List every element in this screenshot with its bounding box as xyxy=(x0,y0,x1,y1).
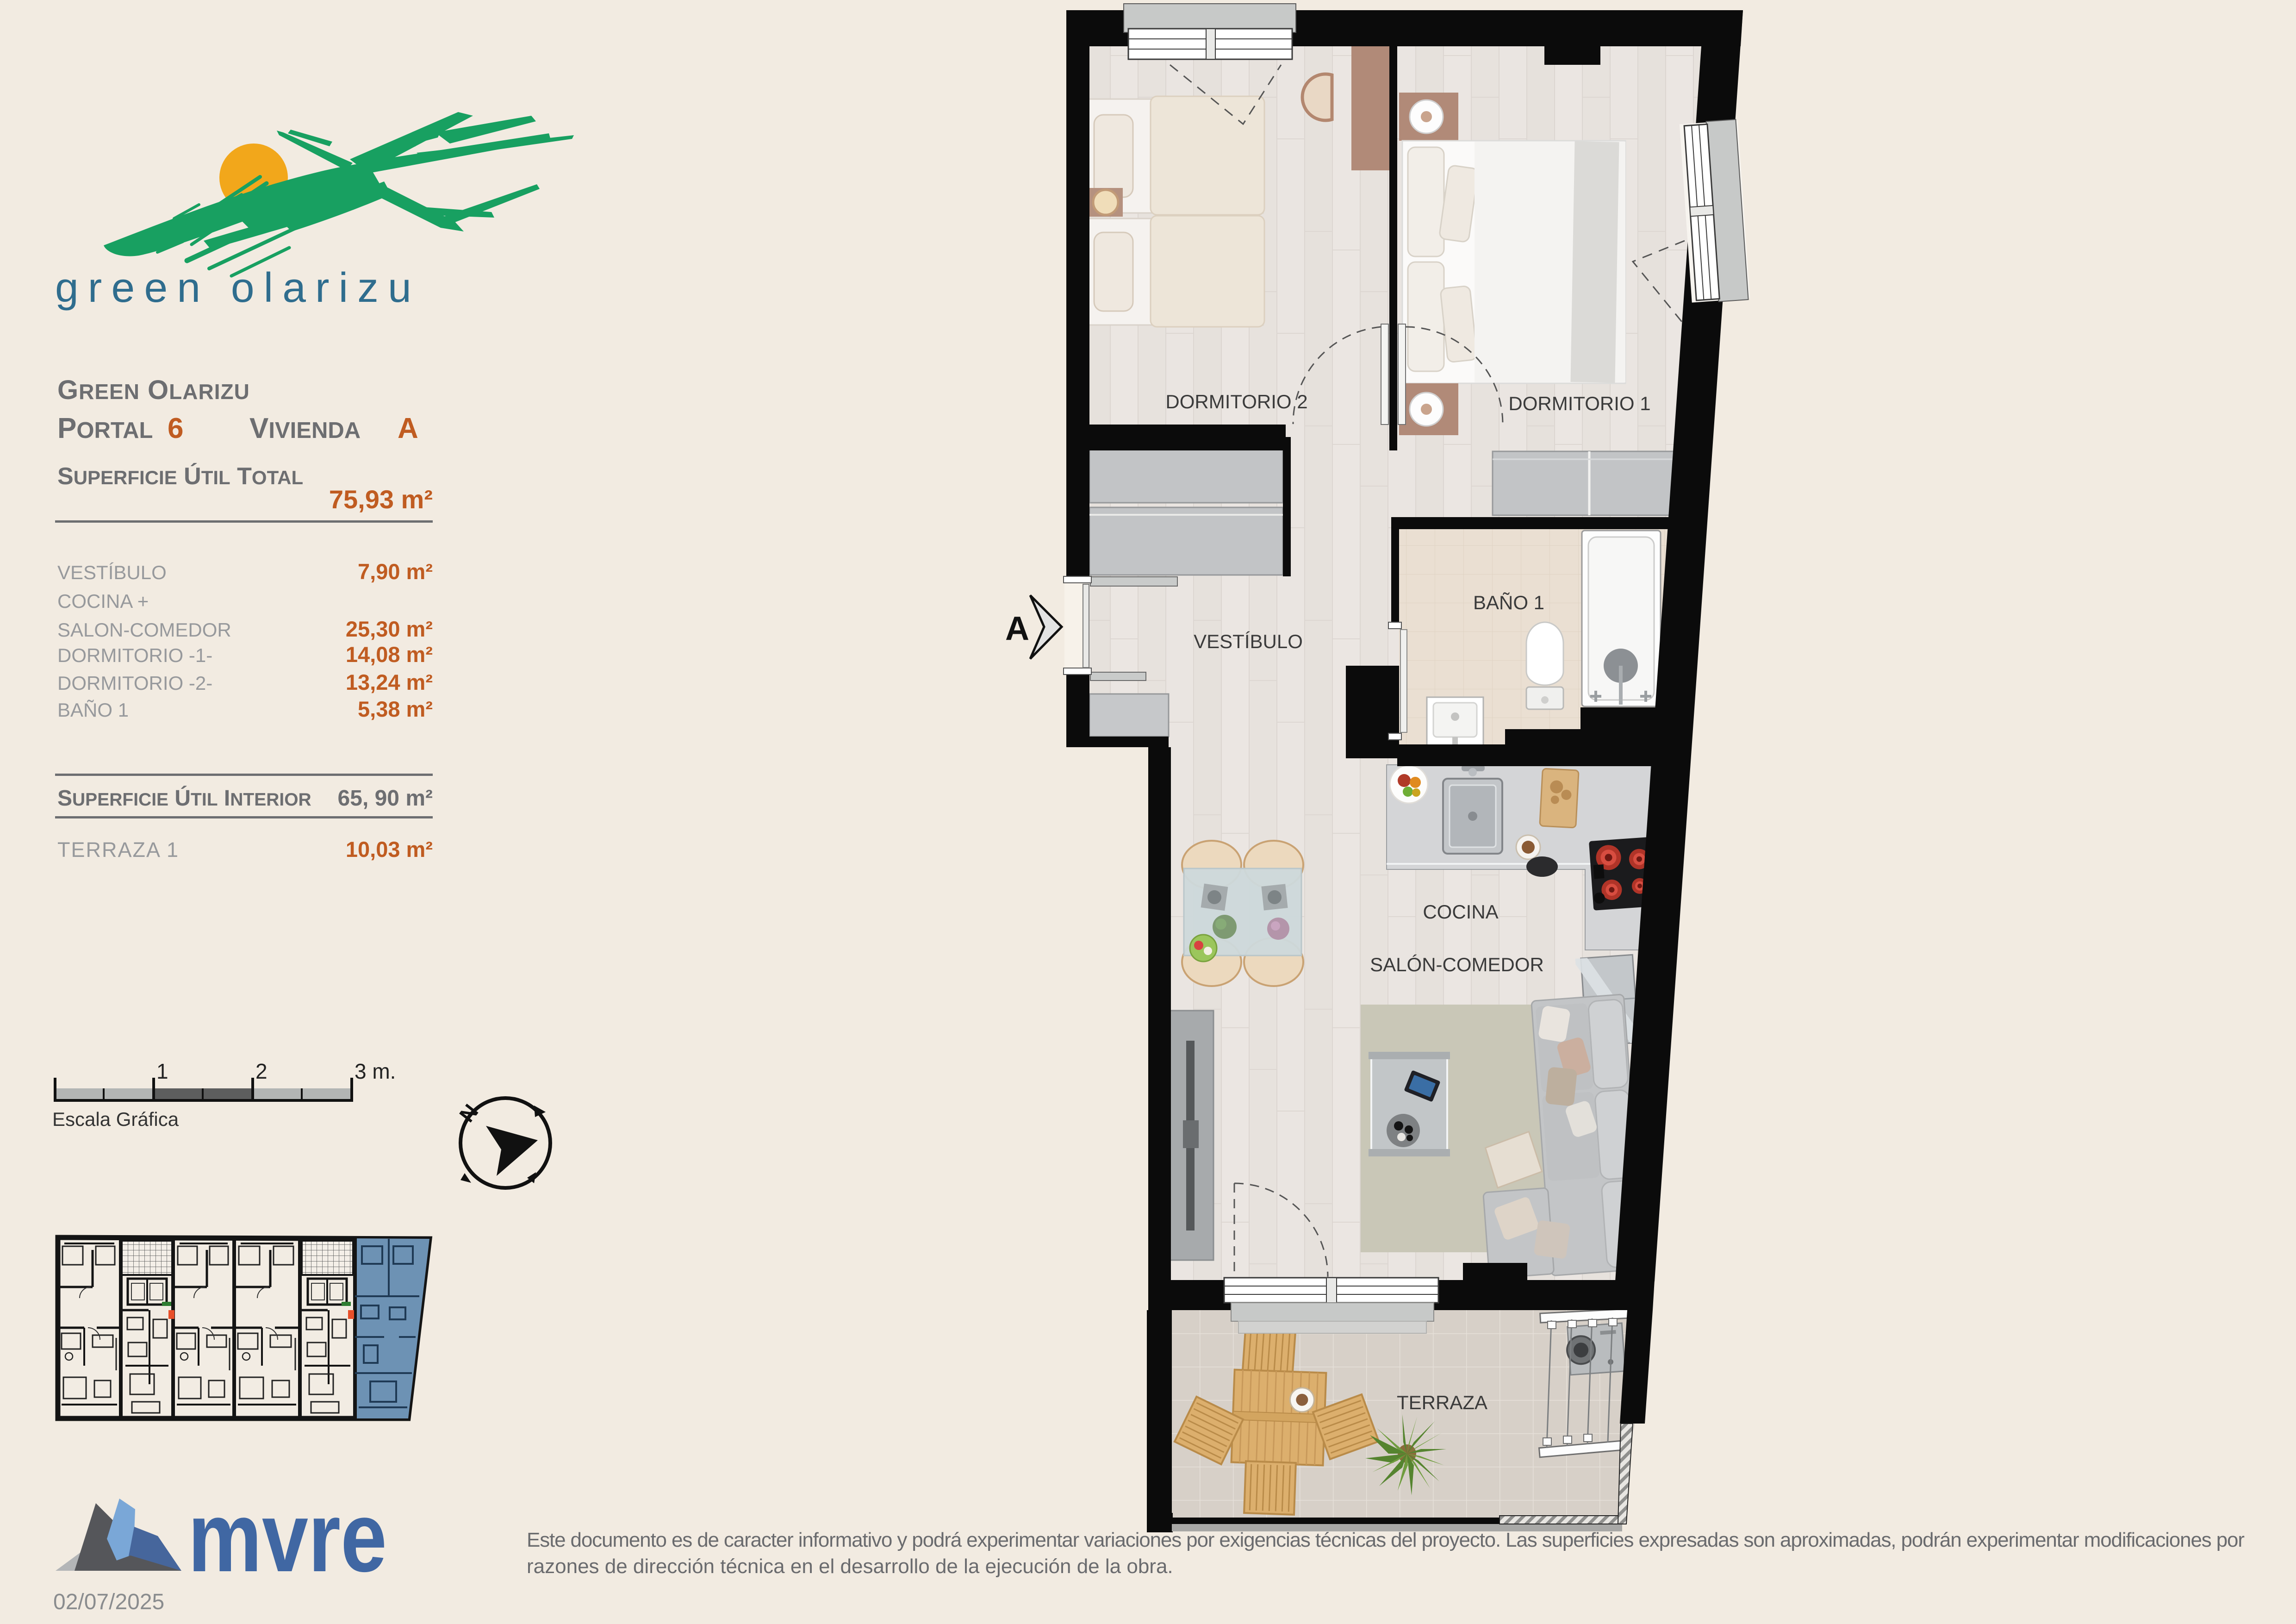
svg-text:Escala Gráfica: Escala Gráfica xyxy=(52,1108,179,1130)
svg-text:25,30 m²: 25,30 m² xyxy=(346,617,433,641)
svg-text:COCINA: COCINA xyxy=(1423,901,1498,923)
svg-text:BAÑO 1: BAÑO 1 xyxy=(57,699,129,721)
svg-text:Este documento es de caracter: Este documento es de caracter informativ… xyxy=(527,1529,2245,1551)
svg-text:SALON-COMEDOR: SALON-COMEDOR xyxy=(57,619,231,641)
svg-text:14,08 m²: 14,08 m² xyxy=(346,642,433,667)
svg-text:13,24 m²: 13,24 m² xyxy=(346,670,433,694)
svg-text:A: A xyxy=(1005,610,1029,647)
svg-text:6: 6 xyxy=(168,412,183,444)
svg-text:2: 2 xyxy=(255,1059,268,1083)
svg-text:DORMITORIO -1-: DORMITORIO -1- xyxy=(57,644,212,666)
svg-text:TERRAZA: TERRAZA xyxy=(1397,1392,1487,1413)
svg-text:1: 1 xyxy=(156,1059,168,1083)
svg-text:65, 90 m²: 65, 90 m² xyxy=(338,786,433,811)
svg-text:75,93 m²: 75,93 m² xyxy=(329,485,433,514)
svg-text:7,90 m²: 7,90 m² xyxy=(358,559,433,584)
svg-text:TERRAZA 1: TERRAZA 1 xyxy=(57,838,179,862)
svg-text:SUPERFICIE ÚTIL TOTAL: SUPERFICIE ÚTIL TOTAL xyxy=(57,463,303,490)
svg-text:green olarizu: green olarizu xyxy=(55,265,421,311)
svg-text:10,03 m²: 10,03 m² xyxy=(346,837,433,862)
svg-text:VESTÍBULO: VESTÍBULO xyxy=(1194,631,1303,652)
svg-text:5,38 m²: 5,38 m² xyxy=(358,697,433,721)
svg-text:GREEN OLARIZU: GREEN OLARIZU xyxy=(57,375,250,405)
svg-text:DORMITORIO -2-: DORMITORIO -2- xyxy=(57,672,212,694)
svg-text:DORMITORIO 2: DORMITORIO 2 xyxy=(1165,391,1307,412)
svg-text:VESTÍBULO: VESTÍBULO xyxy=(57,562,167,583)
svg-text:02/07/2025: 02/07/2025 xyxy=(53,1590,164,1614)
svg-text:3 m.: 3 m. xyxy=(355,1059,396,1083)
svg-text:SALÓN-COMEDOR: SALÓN-COMEDOR xyxy=(1370,954,1544,975)
svg-text:razones de dirección técnica e: razones de dirección técnica en el desar… xyxy=(527,1555,1173,1578)
svg-text:A: A xyxy=(398,412,418,444)
svg-text:mvre: mvre xyxy=(188,1481,387,1593)
svg-text:COCINA +: COCINA + xyxy=(57,590,149,612)
svg-text:BAÑO 1: BAÑO 1 xyxy=(1473,592,1544,613)
svg-text:DORMITORIO 1: DORMITORIO 1 xyxy=(1508,393,1650,414)
